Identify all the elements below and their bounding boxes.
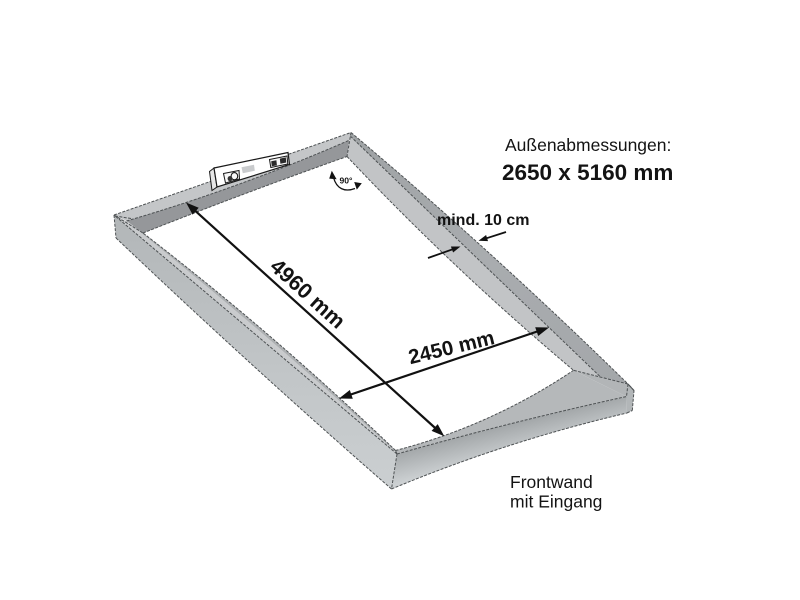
svg-text:Außenabmessungen:: Außenabmessungen: (505, 135, 671, 155)
svg-text:2650 x 5160 mm: 2650 x 5160 mm (502, 160, 673, 185)
svg-text:mit Eingang: mit Eingang (510, 492, 602, 512)
svg-text:90°: 90° (340, 176, 354, 186)
svg-text:mind. 10 cm: mind. 10 cm (437, 212, 529, 229)
svg-text:Frontwand: Frontwand (510, 472, 593, 492)
